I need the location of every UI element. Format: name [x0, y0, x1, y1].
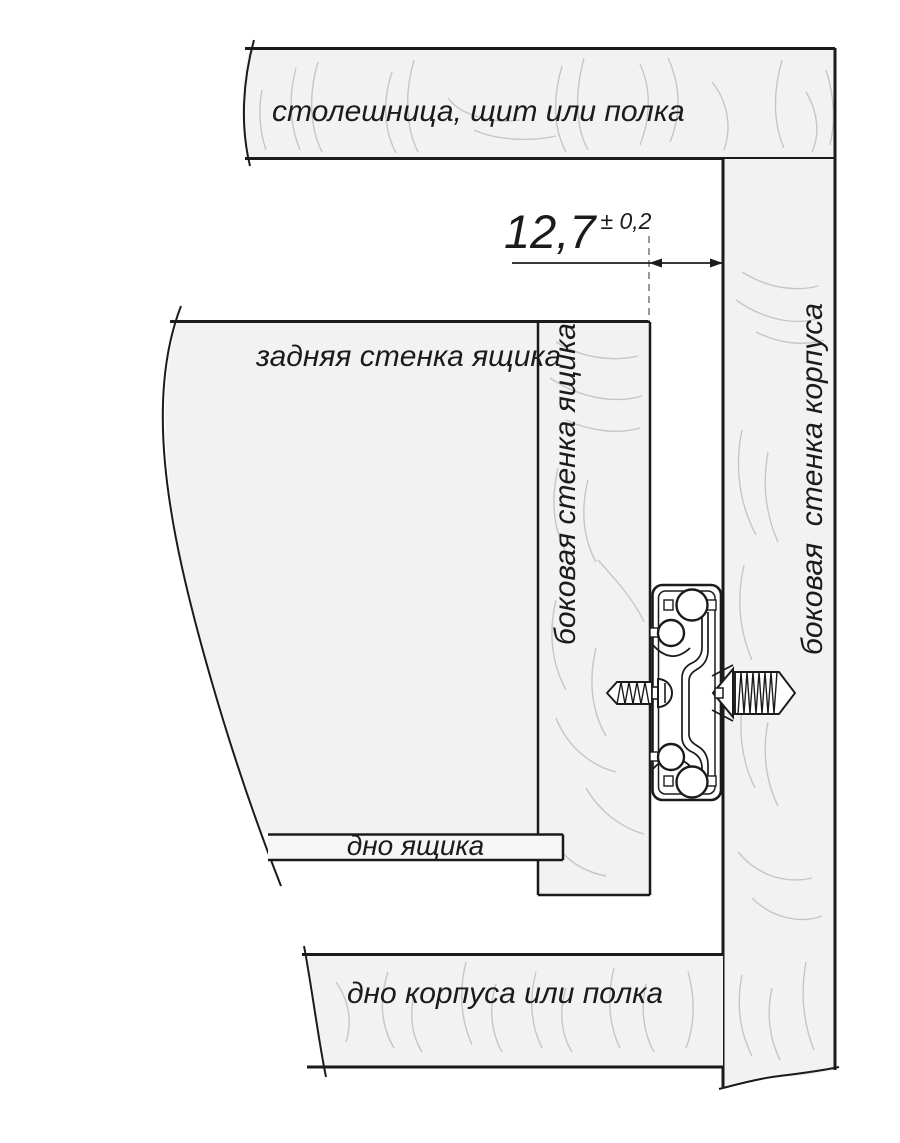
- dimension-tolerance: ± 0,2: [600, 209, 651, 233]
- screw-left-icon: [607, 679, 672, 707]
- ball-bearing: [677, 767, 708, 798]
- dimension-text: 12,7 ± 0,2: [504, 207, 651, 257]
- label-cabinet-bottom: дно корпуса или полка: [330, 977, 680, 1011]
- cabinet-bottom-panel: [302, 946, 723, 1077]
- label-drawer-bottom: дно ящика: [268, 833, 563, 859]
- dimension-value: 12,7: [504, 207, 595, 257]
- drawer-slide-installation-diagram: [0, 0, 900, 1143]
- diagram-canvas: столешница, щит или полка задняя стенка …: [0, 0, 900, 1143]
- label-drawer-side-wall: боковая стенка ящика: [549, 325, 583, 645]
- arrowhead-left: [649, 259, 662, 268]
- ball-bearing: [658, 744, 684, 770]
- ball-bearing: [677, 590, 708, 621]
- label-drawer-back: задняя стенка ящика: [256, 340, 561, 374]
- label-top-panel: столешница, щит или полка: [272, 95, 685, 129]
- drawer-back-panel: [163, 306, 538, 886]
- label-cabinet-side-wall: боковая стенка корпуса: [796, 315, 830, 655]
- ball-bearing: [658, 620, 684, 646]
- arrowhead-right: [710, 259, 723, 268]
